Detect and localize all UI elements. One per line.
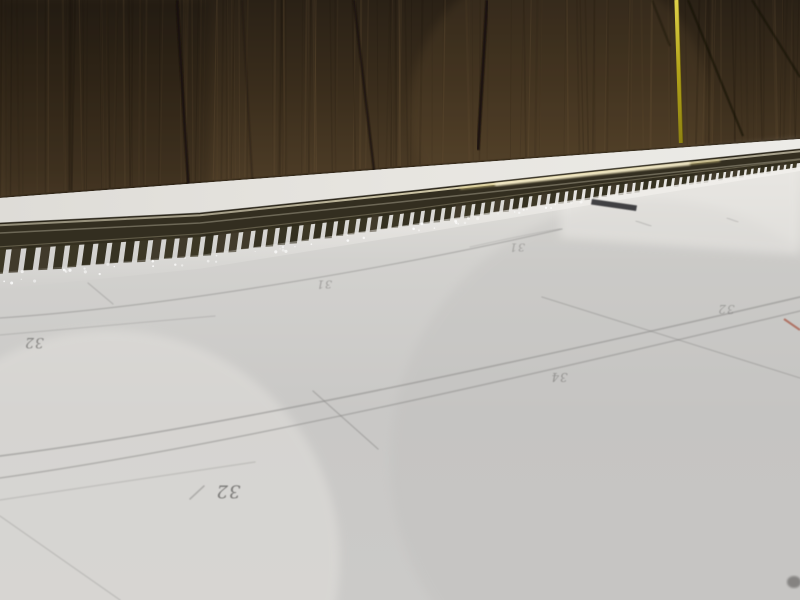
pencil-note: 31 [316,278,332,291]
pencil-note: 31 [509,241,525,254]
foam-sparkle [363,237,366,240]
foam-sparkle [152,260,155,263]
foam-sparkle [83,268,85,270]
foam-sparkle [282,246,284,248]
foam-sparkle [152,265,154,267]
foam-sparkle [207,260,210,263]
pencil-note: 32 [717,302,734,316]
foam-sparkle [456,223,457,224]
foam-sparkle [215,261,217,263]
foam-sparkle [347,234,349,236]
photo-model-railroad-scene: 323234313132 [0,0,800,600]
foam-sparkle [311,243,313,245]
foam-sparkle [184,257,186,259]
foam-sparkle [545,207,547,209]
foam-sparkle [464,222,467,225]
wood-grain-streak [360,0,361,169]
foam-sparkle [274,250,277,253]
wood-grain-streak [712,0,713,143]
foam-sparkle [294,246,295,247]
wood-grain-streak [309,0,310,173]
foam-sparkle [554,204,556,206]
foam-sparkle [98,273,100,275]
foam-sparkle [347,239,350,242]
pencil-note: 32 [24,334,44,350]
foam-sparkle [114,266,116,268]
foam-sparkle [518,212,520,214]
foam-sparkle [216,255,218,257]
foam-sparkle [181,264,183,266]
foam-sparkle [418,229,420,231]
foam-sparkle [467,217,470,220]
foam-sparkle [33,279,36,282]
foam-sparkle [21,270,24,273]
foam-sparkle [84,270,87,273]
foam-sparkle [454,220,457,223]
foam-sparkle [106,263,109,266]
wood-grain-streak [274,0,275,175]
foam-sparkle [68,269,71,272]
scene-svg [0,0,800,600]
foam-sparkle [3,281,5,283]
foam-sparkle [526,208,528,210]
wood-grain-streak [285,0,286,175]
foam-sparkle [65,270,68,273]
foam-sparkle [420,222,423,225]
foam-sparkle [282,249,285,252]
foam-sparkle [580,200,583,203]
foam-sparkle [523,209,525,211]
foam-sparkle [570,201,573,204]
foam-sparkle [497,213,498,214]
foam-sparkle [279,248,280,249]
pencil-note: 34 [550,370,567,384]
foam-sparkle [21,279,22,280]
foam-sparkle [457,223,458,224]
foam-sparkle [284,250,287,253]
foam-sparkle [255,251,256,252]
pencil-note: 32 [216,481,241,502]
foam-sparkle [174,264,176,266]
foam-sparkle [476,217,479,220]
foam-sparkle [10,281,13,284]
foam-sparkle [550,207,552,209]
foam-sparkle [412,227,415,230]
wood-grain-streak [284,0,285,175]
foam-sparkle [514,211,515,212]
foam-sparkle [434,227,436,229]
